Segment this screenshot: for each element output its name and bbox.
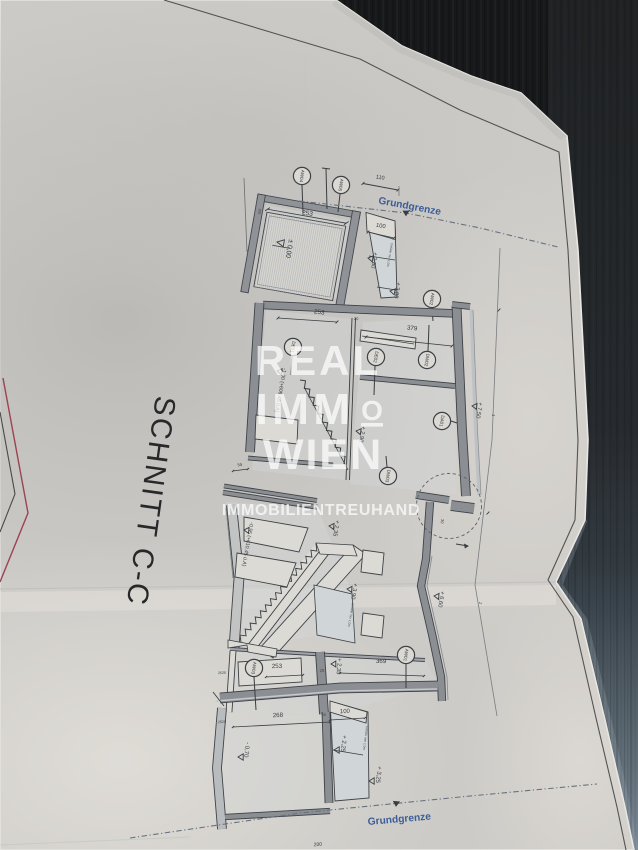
- svg-text:253: 253: [272, 663, 283, 670]
- svg-text:379: 379: [407, 325, 418, 333]
- svg-text:O: O: [361, 395, 383, 426]
- svg-text:2520: 2520: [218, 671, 226, 675]
- svg-text:100: 100: [340, 709, 351, 716]
- svg-text:IMM: IMM: [255, 385, 354, 434]
- svg-text:369: 369: [376, 658, 387, 665]
- svg-text:WIEN: WIEN: [263, 431, 383, 479]
- svg-text:268: 268: [273, 712, 284, 720]
- svg-text:REAL: REAL: [255, 337, 381, 384]
- svg-text:IMMOBILIENTREUHAND: IMMOBILIENTREUHAND: [222, 502, 420, 519]
- svg-text:253: 253: [313, 308, 325, 316]
- svg-text:200: 200: [314, 842, 323, 849]
- svg-text:2520: 2520: [218, 720, 226, 724]
- svg-text:20: 20: [322, 713, 326, 717]
